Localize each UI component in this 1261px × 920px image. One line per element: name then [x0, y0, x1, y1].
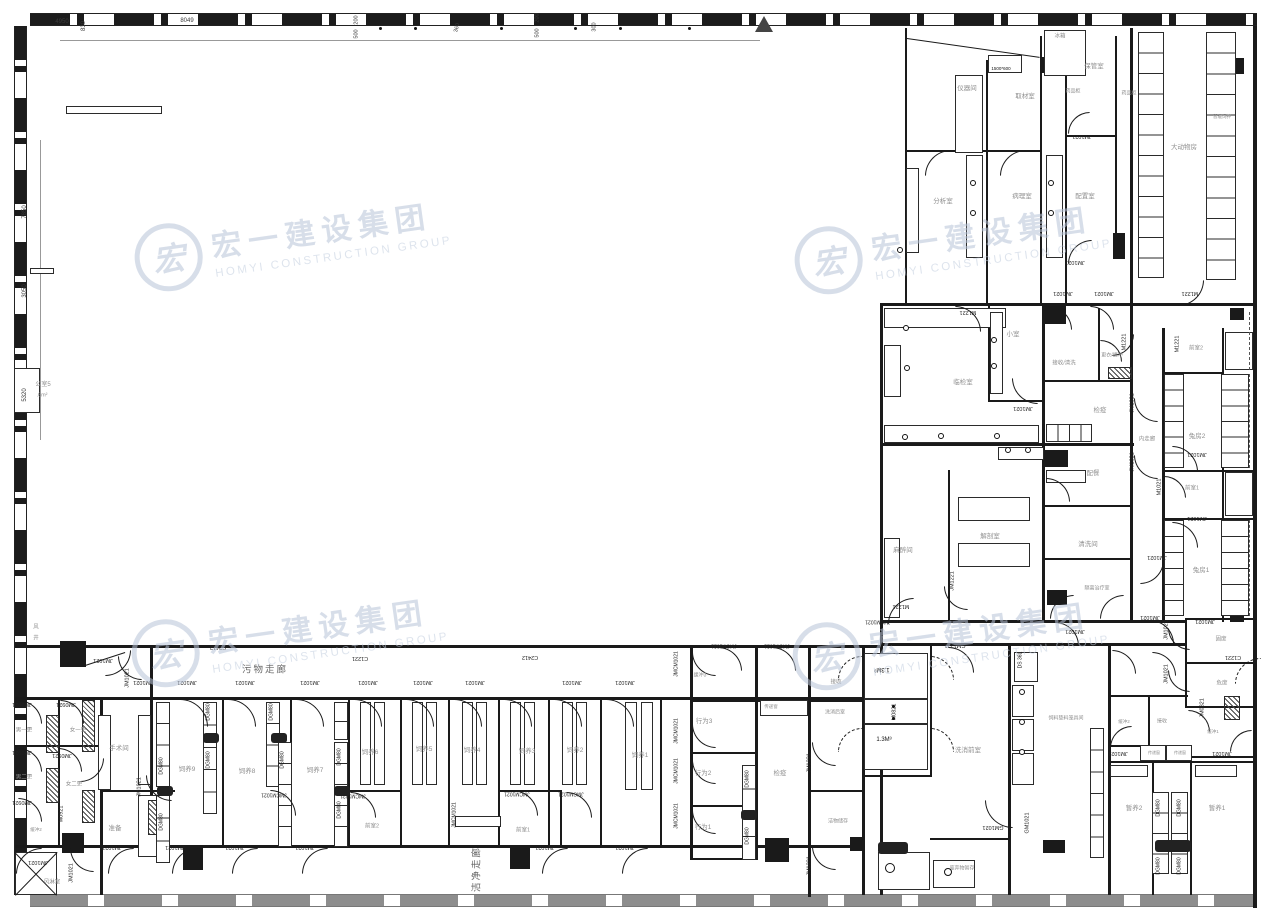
- dashed-line: [1249, 374, 1250, 468]
- furniture: [30, 268, 54, 274]
- shaft: [1042, 450, 1068, 467]
- company-name-cn: 宏一建设集团: [205, 585, 448, 662]
- door-swing: [772, 647, 796, 671]
- door-code-label: JM1021: [1013, 404, 1033, 410]
- wall: [808, 700, 864, 702]
- door-code-label: JM1021: [1195, 617, 1215, 623]
- door-code-label: JM1021: [1094, 289, 1114, 295]
- door-swing: [812, 846, 836, 870]
- watermark-logo-icon: 宏: [130, 219, 207, 296]
- room-label: 内走廊: [1139, 437, 1156, 443]
- wall: [1042, 558, 1132, 560]
- door-swing: [930, 728, 954, 752]
- wall: [1148, 695, 1150, 747]
- door-code-label: JM0921: [12, 798, 32, 804]
- room-label: 更衣/缓冲: [1101, 354, 1122, 359]
- door-swing: [302, 848, 328, 874]
- corridor-label: 污物走廊: [242, 665, 288, 675]
- door-code-label: JMCM1021: [675, 718, 680, 744]
- room-label: 暂养2: [1126, 806, 1143, 813]
- furniture: [1012, 753, 1034, 785]
- door-code-label: JM0821: [1200, 698, 1206, 718]
- door-code-label: M1221: [1175, 336, 1181, 353]
- equipment-unit: [334, 786, 350, 796]
- wall: [862, 775, 932, 777]
- equipment-unit: [741, 810, 757, 820]
- equipment-label: DGM80: [1178, 799, 1183, 816]
- cage-rack: [1221, 520, 1249, 616]
- watermark: 宏宏一建设集团HOMYI CONSTRUCTION GROUP: [127, 580, 450, 691]
- wall: [660, 697, 662, 845]
- door-code-label: JMCM1021: [504, 791, 530, 796]
- furniture: [884, 425, 1039, 443]
- room-label: 传递窗: [1148, 751, 1160, 755]
- room-label: 女二更: [66, 782, 83, 788]
- furniture: [455, 816, 501, 827]
- door-code-label: JM1021: [102, 843, 122, 849]
- door-code-label: JM0921: [56, 700, 76, 706]
- room-label: 分析室: [933, 199, 953, 206]
- door-code-label: JM1021: [358, 678, 378, 684]
- wall: [880, 443, 1134, 446]
- wall: [1042, 505, 1132, 507]
- dimension-label: 360: [454, 23, 462, 33]
- exterior-wall-top: [30, 13, 1257, 26]
- door-code-label: M1221: [893, 602, 910, 608]
- equipment-label: DGM80: [1178, 857, 1183, 874]
- room-label: 行为2: [695, 771, 712, 778]
- room-label: 兔房2: [1189, 434, 1206, 441]
- furniture: [906, 168, 919, 253]
- room-label: 风: [33, 625, 39, 631]
- door-code-label: JMCM1021: [675, 803, 680, 829]
- wall: [880, 305, 883, 645]
- dot-symbol: [619, 27, 622, 30]
- furniture: [958, 497, 1030, 521]
- wall: [100, 845, 103, 895]
- furniture: [958, 543, 1030, 567]
- watermark-logo-icon: 宏: [790, 222, 867, 299]
- door-code-label: JM1021: [1065, 627, 1085, 633]
- equipment-label: DGM80: [160, 813, 165, 830]
- room-label: 检疫: [1094, 408, 1107, 415]
- section-marker: [755, 16, 773, 32]
- door-code-label: JM0921: [12, 700, 32, 706]
- dimension-label: 4950: [55, 19, 68, 25]
- door-code-label: JM0921: [52, 751, 72, 757]
- furniture: [864, 653, 928, 699]
- room-label: 接收/清洗: [1052, 361, 1076, 367]
- door-code-label: JM1021: [125, 668, 131, 688]
- door-code-label: M1221: [960, 308, 977, 314]
- watermark: 宏宏一建设集团HOMYI CONSTRUCTION GROUP: [130, 184, 453, 295]
- wall: [348, 697, 350, 845]
- room-label: 饲养6: [362, 750, 379, 757]
- dimension-label: 200: [535, 13, 541, 22]
- door-code-label: JMCM1021: [453, 802, 458, 828]
- door-code-label: GM1221: [944, 641, 965, 647]
- door-code-label: M0921: [59, 806, 65, 823]
- room-label: 危废: [1216, 681, 1227, 687]
- room-label: 检疫: [774, 771, 787, 778]
- door-swing: [1055, 622, 1079, 646]
- door-code-label: JM1021: [1140, 613, 1160, 619]
- door-code-label: JM1021: [1187, 450, 1207, 456]
- door-swing: [622, 848, 648, 874]
- room-label: 解剖室: [980, 534, 1000, 541]
- room-label: 小室: [1007, 332, 1020, 339]
- instrument-symbol: [902, 434, 908, 440]
- wall: [1185, 706, 1255, 708]
- door-code-label: JM1021: [137, 777, 143, 797]
- wall: [560, 790, 562, 847]
- room-label: 配置室: [1075, 194, 1095, 201]
- shaft: [765, 838, 789, 862]
- room-label: 饲养3: [519, 749, 536, 756]
- equipment-label: 1.3M³: [874, 666, 889, 672]
- locker-hatch: [1224, 696, 1240, 720]
- room-label: 前室1: [1185, 486, 1199, 492]
- shaft: [510, 847, 530, 869]
- room-label: 暂养1: [1209, 806, 1226, 813]
- door-code-label: JM1021: [93, 656, 113, 662]
- door-swing: [1110, 726, 1132, 748]
- wall: [1108, 761, 1257, 763]
- wall: [1185, 756, 1255, 758]
- cage-rack: [1046, 424, 1092, 442]
- door-swing: [1164, 476, 1186, 498]
- shaft: [850, 837, 864, 851]
- fixture-symbol: [1005, 447, 1011, 453]
- equipment-unit: [878, 842, 908, 854]
- wall: [905, 28, 907, 305]
- fixture-symbol: [885, 863, 895, 873]
- locker-hatch: [46, 768, 59, 803]
- door-code-label: JMCM1021: [711, 643, 737, 648]
- wall: [1040, 36, 1042, 305]
- furniture: [66, 106, 162, 114]
- dot-symbol: [574, 27, 577, 30]
- door-swing: [1140, 560, 1164, 584]
- door-code-label: C1221: [352, 654, 368, 660]
- door-code-label: JMCM1021: [261, 792, 287, 797]
- wall: [548, 697, 550, 845]
- furniture: [933, 860, 975, 888]
- wall: [1190, 761, 1192, 895]
- door-swing: [232, 848, 258, 874]
- dimension-label: 300: [592, 22, 598, 31]
- room-label: 保管室: [1084, 64, 1104, 71]
- equipment-label: 1.3M³: [876, 737, 891, 743]
- door-code-label: C2412: [210, 643, 226, 649]
- door-swing: [1168, 628, 1190, 650]
- door-code-label: JM1021: [235, 678, 255, 684]
- furniture: [990, 312, 1003, 394]
- door-code-label: JM1021: [1187, 514, 1207, 520]
- room-label: 洗消后室: [825, 711, 845, 716]
- dot-symbol: [892, 705, 895, 708]
- door-code-label: JM1021: [1147, 553, 1167, 559]
- dashed-line: [1249, 520, 1250, 616]
- door-code-label: JM1021: [225, 843, 245, 849]
- door-swing: [1230, 730, 1252, 752]
- instrument-symbol: [991, 363, 997, 369]
- room-label: 准备: [109, 826, 122, 833]
- cage-rack: [334, 702, 348, 740]
- wall: [880, 620, 1187, 623]
- watermark-text: 宏一建设集团HOMYI CONSTRUCTION GROUP: [205, 585, 450, 676]
- door-code-label: JM1221: [807, 753, 813, 773]
- room-label: 饲养1: [632, 753, 649, 760]
- shaft: [1113, 233, 1125, 259]
- room-label: 饲养2: [567, 748, 584, 755]
- dimension-line: [60, 40, 760, 41]
- door-swing: [108, 848, 134, 874]
- door-code-label: JM1021: [133, 678, 153, 684]
- equipment-label: DGM80: [1157, 799, 1162, 816]
- room-label: 传递窗: [1174, 751, 1186, 755]
- door-code-label: JM0921: [12, 748, 32, 754]
- furniture: [1046, 155, 1063, 258]
- dimension-label: 3050: [22, 284, 28, 297]
- door-code-label: JMCM1021: [865, 619, 891, 624]
- door-code-label: JM1021: [1053, 289, 1073, 295]
- instrument-symbol: [897, 247, 903, 253]
- door-code-label: JM1021: [535, 843, 555, 849]
- wall: [986, 60, 988, 305]
- door-swing: [948, 647, 974, 673]
- room-label: 缓冲1: [1207, 730, 1219, 735]
- equipment-label: 1500*600: [991, 67, 1010, 72]
- furniture: [864, 724, 928, 770]
- door-code-label: JM1021: [1164, 620, 1170, 640]
- room-label: 仪器间: [957, 86, 977, 93]
- room-label: 冰箱: [1054, 34, 1065, 40]
- room-label: 接收: [830, 680, 841, 686]
- equipment-label: DGM80: [746, 770, 751, 787]
- room-label: 清洗间: [1078, 542, 1098, 549]
- locker-hatch: [1108, 367, 1132, 379]
- room-label: 前室2: [365, 824, 379, 830]
- door-swing: [228, 699, 256, 727]
- furniture: [884, 308, 1006, 328]
- dimension-label: 8049: [180, 18, 193, 24]
- room-label: 洗消前室: [955, 748, 981, 755]
- room-label: 公室5: [35, 382, 50, 388]
- room-label: 前室1: [516, 828, 530, 834]
- room-label: 大动物房: [1171, 145, 1197, 152]
- instrument-symbol: [938, 433, 944, 439]
- door-code-label: JM1021: [1065, 258, 1085, 264]
- shaft: [1230, 308, 1244, 320]
- room-label: 废弃物暂存: [949, 867, 974, 872]
- room-label: 接收: [1157, 720, 1167, 725]
- room-label: 风淋室: [44, 880, 61, 886]
- door-code-label: JM1021: [1164, 664, 1170, 684]
- dimension-label: 5320: [22, 388, 28, 401]
- company-name-en: HOMYI CONSTRUCTION GROUP: [215, 235, 453, 280]
- equipment-unit: [203, 733, 219, 743]
- equipment-unit: [271, 733, 287, 743]
- equipment-label: DGM80: [207, 703, 212, 720]
- furniture: [1225, 472, 1253, 516]
- door-code-label: GM1021: [1025, 812, 1031, 833]
- fixture-symbol: [944, 868, 952, 876]
- door-code-label: JM1221: [950, 571, 956, 591]
- equipment-label: DGM80: [338, 748, 343, 765]
- wall: [1115, 36, 1117, 258]
- furniture: [98, 715, 111, 790]
- room-label: 固废: [1215, 637, 1226, 643]
- door-swing: [1048, 306, 1072, 330]
- dashed-line: [1249, 312, 1250, 370]
- room-label: 饲养8: [239, 769, 256, 776]
- room-label: 缓冲3: [694, 674, 707, 679]
- door-swing: [1134, 455, 1158, 479]
- dot-symbol: [414, 27, 417, 30]
- room-label: .6m²: [37, 393, 48, 399]
- corridor-label: 洁净走廊: [472, 846, 482, 892]
- furniture: [966, 155, 983, 258]
- door-swing: [1100, 595, 1124, 619]
- room-label: 洁物储存: [828, 820, 848, 825]
- room-label: 男一更: [16, 728, 33, 734]
- door-swing: [838, 728, 862, 752]
- instrument-symbol: [903, 325, 909, 331]
- wall: [1130, 28, 1133, 306]
- instrument-symbol: [1048, 210, 1054, 216]
- door-swing: [172, 848, 198, 874]
- door-code-label: JM1021: [28, 858, 48, 864]
- dimension-label: 200: [354, 15, 360, 24]
- wall: [448, 697, 450, 845]
- door-code-label: C1221: [1225, 653, 1241, 659]
- locker-hatch: [82, 790, 95, 823]
- dot-symbol: [500, 27, 503, 30]
- door-code-label: JMCM1021: [764, 643, 790, 648]
- door-code-label: JM1021: [165, 843, 185, 849]
- room-label: 饲养5: [416, 747, 433, 754]
- wall: [808, 790, 864, 792]
- door-code-label: JM1021: [1130, 393, 1136, 413]
- furniture: [1195, 765, 1237, 777]
- room-label: 取材室: [1015, 94, 1035, 101]
- equipment-label: DGM80: [1157, 857, 1162, 874]
- exterior-wall-bottom: [30, 894, 1257, 907]
- dimension-label: 500: [354, 29, 360, 38]
- door-swing: [1000, 150, 1026, 176]
- wall: [880, 643, 1185, 646]
- door-swing: [812, 742, 836, 766]
- room-label: 药品柜: [1121, 92, 1136, 97]
- cage-rack: [1138, 32, 1164, 278]
- room-label: 手术间: [109, 746, 129, 753]
- wall: [222, 697, 224, 845]
- room-label: 临检室: [953, 380, 973, 387]
- instrument-symbol: [1019, 749, 1025, 755]
- instrument-symbol: [1019, 689, 1025, 695]
- equipment-unit: [1155, 840, 1191, 852]
- room-label: 行为1: [695, 825, 712, 832]
- equipment-label: DGM80: [270, 703, 275, 720]
- door-swing: [718, 647, 742, 671]
- cage-rack: [1090, 728, 1104, 858]
- door-code-label: C2412: [522, 653, 538, 659]
- door-code-label: JM1021: [413, 678, 433, 684]
- wall: [15, 645, 882, 648]
- equipment-unit: [157, 786, 173, 796]
- instrument-symbol: [970, 210, 976, 216]
- door-code-label: JMCM1021: [558, 791, 584, 796]
- door-code-label: JM1021: [1072, 132, 1092, 138]
- room-label: 缓冲2: [30, 828, 42, 833]
- room-label: 暂缓饲养: [1213, 115, 1231, 120]
- door-code-label: JM1021: [300, 678, 320, 684]
- furniture: [641, 702, 653, 790]
- door-code-label: M1221: [1122, 334, 1128, 351]
- dot-symbol: [688, 27, 691, 30]
- wall: [1008, 645, 1011, 895]
- door-code-label: JM1021: [295, 843, 315, 849]
- door-swing: [692, 724, 716, 748]
- door-code-label: JM1021: [562, 678, 582, 684]
- shaft: [1043, 840, 1065, 853]
- locker-hatch: [82, 700, 95, 752]
- instrument-symbol: [1019, 719, 1025, 725]
- door-code-label: JM1021: [615, 678, 635, 684]
- door-swing: [925, 150, 951, 176]
- wall: [1042, 380, 1132, 382]
- wall: [930, 838, 1010, 840]
- door-swing: [296, 699, 324, 727]
- wall: [400, 697, 402, 845]
- room-label: 井: [33, 636, 39, 642]
- door-code-label: JM1221: [807, 856, 813, 876]
- door-code-label: M1221: [1182, 289, 1199, 295]
- equipment-label: DGM80: [746, 827, 751, 844]
- fixture-symbol: [1025, 447, 1031, 453]
- instrument-symbol: [904, 365, 910, 371]
- room-label: 配餐: [1087, 471, 1100, 478]
- door-swing: [1172, 522, 1198, 548]
- room-label: 药品柜: [1065, 90, 1080, 95]
- door-code-label: GM1021: [982, 823, 1003, 829]
- door-swing: [1112, 650, 1136, 674]
- room-label: 前室2: [1189, 346, 1203, 352]
- equipment-label: DS 36L: [1019, 652, 1024, 669]
- door-swing: [1134, 398, 1158, 422]
- room-label: 传递窗: [764, 705, 778, 710]
- wall-diagonal: [907, 38, 1040, 58]
- instrument-symbol: [1048, 180, 1054, 186]
- shaft: [60, 641, 86, 667]
- dot-symbol: [892, 717, 895, 720]
- door-code-label: JM1021: [177, 678, 197, 684]
- door-code-label: JM1021: [615, 843, 635, 849]
- room-label: 病理室: [1012, 194, 1032, 201]
- equipment-label: DGM80: [281, 751, 286, 768]
- dot-symbol: [379, 27, 382, 30]
- door-swing: [838, 656, 862, 680]
- room-label: 饲养7: [307, 768, 324, 775]
- room-label: 男二更: [16, 775, 33, 781]
- wall: [880, 303, 1257, 306]
- room-label: 饲养9: [179, 767, 196, 774]
- door-swing: [1068, 112, 1090, 134]
- furniture: [884, 345, 901, 397]
- dimension-label: 7850: [22, 205, 28, 218]
- floor-plan: 4950830804920050036020050030078503050532…: [0, 0, 1261, 920]
